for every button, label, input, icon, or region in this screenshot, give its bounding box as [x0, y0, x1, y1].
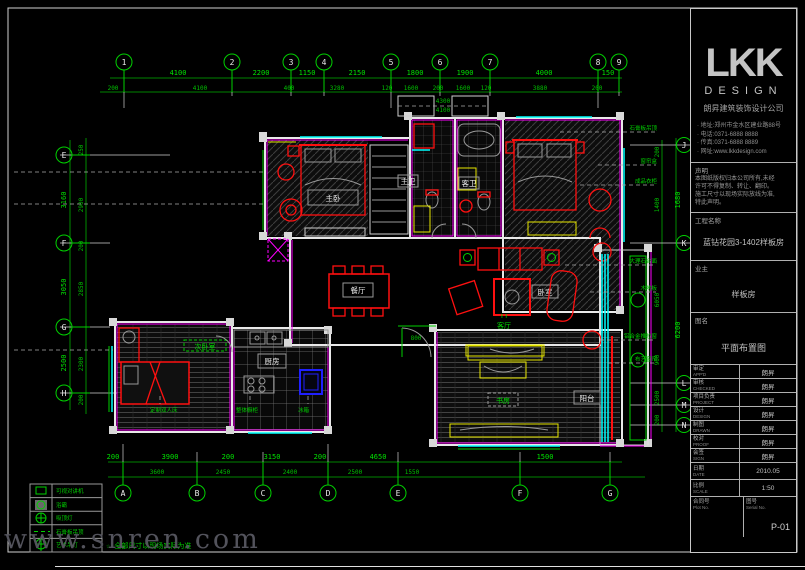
room-label: 卧室 [538, 287, 553, 297]
date-row: 日期DATE2010.05 [691, 463, 796, 480]
scale-value: 1:50 [740, 480, 797, 497]
table-row: 校对PROOF朗昇 [691, 435, 796, 449]
dim-bottom2: 3600 [150, 469, 165, 476]
dim-left2: 200 [78, 394, 85, 405]
grid-label: 4 [322, 58, 327, 67]
grid-label: 8 [596, 58, 601, 67]
contact-line: · 网址:www.lkkdesign.com [697, 148, 792, 157]
contact-line: · 电话:0371-6888 8888 [697, 131, 792, 140]
client-label: 业主 [695, 263, 792, 273]
dim-right2: 6050 [654, 292, 661, 307]
dim-right: 1680 [674, 192, 682, 209]
contact-line: · 地址:郑州市金水区建业路88号 [697, 122, 792, 131]
dim-inner: 4100 [436, 107, 451, 114]
dim-right2: 200 [654, 414, 661, 425]
scale-row: 比例SCALE1:50 [691, 480, 796, 497]
room-label: 客卫 [462, 178, 477, 188]
watermark: www.snren.com [4, 524, 261, 555]
contact-line: · 传真:0371-6888 8889 [697, 139, 792, 148]
notice-line: 许可不得复制、转让、翻印。 [695, 183, 792, 191]
dim-left2: 2300 [78, 356, 85, 371]
notice-label: 声明 [695, 165, 792, 175]
dim-left2: 250 [78, 144, 85, 155]
dim-bottom2: 1550 [405, 469, 420, 476]
row-en: APP'D [693, 372, 737, 377]
table-row: 制图DRAWN朗昇 [691, 421, 796, 435]
plot-serial-row: 合同号Plot No. 图号Serial No. P-01 [691, 496, 796, 537]
dim-right: 6200 [674, 322, 682, 339]
dim-top2: 200 [108, 85, 119, 92]
date-value: 2010.05 [740, 463, 797, 480]
dim-left2: 2900 [78, 197, 85, 212]
grid-label: G [62, 323, 67, 332]
grid-label: E [396, 489, 401, 498]
room-label: 主卧 [326, 193, 341, 203]
row-en: DESIGN [693, 414, 737, 419]
dim-top: 1900 [457, 69, 474, 77]
dim-inner: 800 [411, 335, 422, 342]
table-row: 设计DESIGN朗昇 [691, 407, 796, 421]
logo-lkk: LKK [691, 43, 796, 83]
notice-line: 特此声明。 [695, 199, 792, 207]
dim-bottom2: 2400 [283, 469, 298, 476]
annotation: 石膏板吊顶 [629, 124, 657, 132]
dim-right2: 2500 [654, 390, 661, 405]
row-value: 朗昇 [740, 365, 797, 379]
grid-bubbles-bottom: A B C D E F G [115, 462, 618, 501]
dim-bottom2: 2500 [348, 469, 363, 476]
annotation: 冰箱 [298, 406, 310, 414]
annotation: 定制双人床 [150, 406, 178, 414]
table-row: 项目负责PROJECT朗昇 [691, 393, 796, 407]
room-dining: 餐厅 [268, 239, 389, 316]
project-name: 蓝钻花园3-1402样板房 [695, 237, 792, 248]
annotation: 布艺窗帘 [635, 355, 658, 363]
row-en: PROOF [693, 442, 737, 447]
grid-label: L [682, 379, 687, 388]
dim-top: 4100 [170, 69, 187, 77]
table-row: 会签SIGN朗昇 [691, 449, 796, 463]
dim-right2: 1400 [654, 197, 661, 212]
client-name: 样板房 [695, 289, 792, 300]
dim-left: 3050 [60, 279, 68, 296]
annotation: 窗帘盒 [640, 157, 657, 165]
grid-label: C [261, 489, 266, 498]
notice-line: 施工尺寸以现场实际放线为准, [695, 191, 792, 199]
room-label: 阳台 [580, 393, 595, 403]
drawing-title-label: 图名 [695, 315, 792, 325]
legend-label: 吸顶灯 [56, 514, 73, 522]
grid-label: E [62, 151, 67, 160]
living-arrows: ↑↑ [500, 312, 508, 320]
dim-top: 2150 [349, 69, 366, 77]
room-label: 餐厅 [351, 286, 366, 295]
grid-label: H [62, 389, 67, 398]
dim-inner: 4300 [436, 98, 451, 105]
dim-top: 150 [602, 69, 615, 77]
room-label: 主卫 [401, 176, 416, 186]
row-value: 朗昇 [740, 449, 797, 463]
grid-label: B [195, 489, 200, 498]
row-value: 朗昇 [740, 379, 797, 393]
annotation: 大理石台面 [629, 257, 657, 265]
grid-label: 1 [122, 58, 127, 67]
client-section: 业主 样板房 [691, 260, 796, 312]
annotation: 成品衣柜 [635, 177, 658, 185]
grid-label: K [682, 239, 687, 248]
grid-label: G [608, 489, 613, 498]
row-value: 朗昇 [740, 393, 797, 407]
room-label: 厨房 [265, 356, 280, 366]
grid-label: 7 [488, 58, 493, 67]
row-value: 朗昇 [740, 421, 797, 435]
table-row: 审核CHECKED朗昇 [691, 379, 796, 393]
floor-hatching [117, 120, 620, 443]
company-name: 朗昇建筑装饰设计公司 [691, 103, 796, 114]
dim-bottom2: 2450 [216, 469, 231, 476]
dim-bottom: 200 [314, 453, 327, 461]
dim-top: 4000 [536, 69, 553, 77]
grid-label: J [682, 141, 687, 150]
floorplan-drawing: 4100 2200 1150 2150 1800 1900 4000 150 2… [0, 0, 805, 570]
notice-section: 声明 本图纸版权归本公司所有,未经 许可不得复制、转让、翻印。 施工尺寸以现场实… [691, 162, 796, 212]
grid-label: D [326, 489, 331, 498]
row-en: PROJECT [693, 400, 737, 405]
scale-en: SCALE [693, 489, 737, 494]
legend-label: 可视对讲机 [56, 487, 84, 495]
page-number: P-01 [746, 522, 794, 532]
grid-label: F [62, 239, 67, 248]
dim-top: 1150 [299, 69, 316, 77]
project-section: 工程名称 蓝钻花园3-1402样板房 [691, 212, 796, 260]
table-row: 审定APP'D朗昇 [691, 365, 796, 379]
grid-label: 3 [289, 58, 294, 67]
row-value: 朗昇 [740, 435, 797, 449]
dim-left2: 2850 [78, 281, 85, 296]
grid-label: 6 [438, 58, 443, 67]
grid-label: A [121, 489, 126, 498]
cad-sheet: 4100 2200 1150 2150 1800 1900 4000 150 2… [0, 0, 805, 570]
row-en: SIGN [693, 456, 737, 461]
room-label: 次卧室 [195, 342, 216, 351]
dim-top2: 400 [284, 85, 295, 92]
row-en: CHECKED [693, 386, 737, 391]
company-contacts: · 地址:郑州市金水区建业路88号 · 电话:0371-6888 8888 · … [697, 122, 792, 156]
dim-bottom: 1500 [537, 453, 554, 461]
title-block: LKK DESIGN 朗昇建筑装饰设计公司 · 地址:郑州市金水区建业路88号 … [690, 8, 797, 553]
dimension-chain-top: 4100 2200 1150 2150 1800 1900 4000 150 2… [100, 69, 622, 108]
dim-top2: 3280 [330, 85, 345, 92]
legend-label: 浴霸 [56, 501, 68, 509]
serial-en: Serial No. [746, 505, 794, 510]
grid-label: 5 [389, 58, 394, 67]
dim-top: 2200 [253, 69, 270, 77]
dim-bottom: 3150 [264, 453, 281, 461]
date-en: DATE [693, 472, 737, 477]
grid-label: N [682, 421, 687, 430]
room-label: 客厅 [497, 321, 511, 330]
dim-left: 3160 [60, 192, 68, 209]
signature-table: 审定APP'D朗昇 审核CHECKED朗昇 项目负责PROJECT朗昇 设计DE… [691, 364, 796, 496]
grid-label: F [518, 489, 523, 498]
drawing-title-section: 图名 平面布置图 [691, 312, 796, 364]
plot-en: Plot No. [693, 505, 741, 510]
logo-design-text: DESIGN [691, 85, 796, 97]
dim-bottom: 200 [222, 453, 235, 461]
dim-bottom: 3900 [162, 453, 179, 461]
dim-top: 1800 [407, 69, 424, 77]
annotation: 木地板 [640, 284, 657, 292]
grid-label: 9 [617, 58, 622, 67]
dim-top2: 1600 [456, 85, 471, 92]
dim-top2: 1600 [404, 85, 419, 92]
dim-top2: 200 [592, 85, 603, 92]
dim-top2: 200 [433, 85, 444, 92]
annotation: 铝合金推拉窗 [624, 332, 658, 340]
notice-line: 本图纸版权归本公司所有,未经 [695, 175, 792, 183]
dimension-chain-bottom: 200 3900 200 3150 200 4650 1500 3600 245… [107, 444, 645, 485]
drawing-title: 平面布置图 [695, 341, 792, 354]
grid-label: M [682, 401, 687, 410]
dim-top2: 3880 [533, 85, 548, 92]
dim-left: 2500 [60, 355, 68, 372]
dim-bottom: 4650 [370, 453, 387, 461]
project-label: 工程名称 [695, 215, 792, 225]
row-value: 朗昇 [740, 407, 797, 421]
dim-top2: 4100 [193, 85, 208, 92]
dim-left2: 200 [78, 240, 85, 251]
annotation: 整体橱柜 [236, 406, 259, 414]
room-label: 书房 [496, 396, 510, 405]
row-en: DRAWN [693, 428, 737, 433]
grid-label: 2 [230, 58, 235, 67]
dim-bottom: 200 [107, 453, 120, 461]
dim-right2: 200 [654, 146, 661, 157]
